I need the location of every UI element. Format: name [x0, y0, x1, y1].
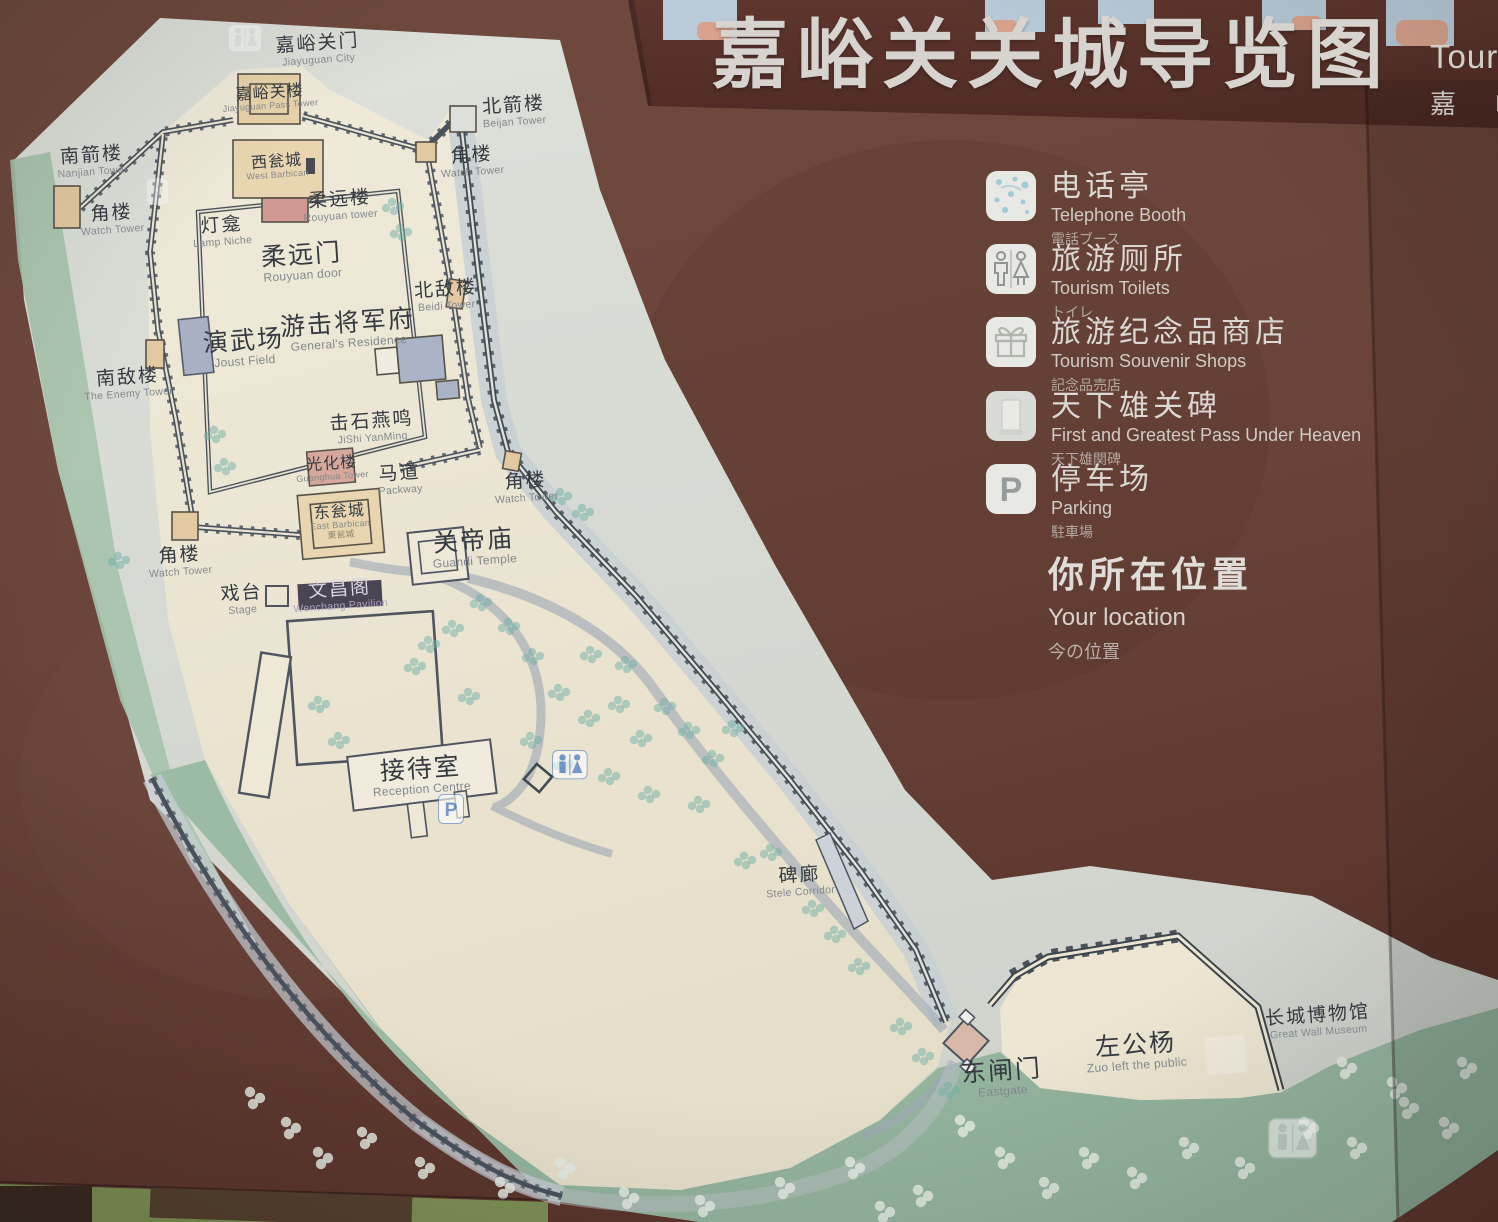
map-board-graphic: P P [0, 0, 1498, 1222]
title-chinese-partial: 嘉 峪 [1430, 84, 1498, 121]
your-location-ja: 今の位置 [1048, 638, 1253, 664]
sign-title: 嘉峪关关城导览图 [712, 2, 1392, 108]
sign-board: P P [0, 0, 1498, 1222]
your-location-block: 你所在位置 Your location 今の位置 [1048, 546, 1253, 664]
photo-vignette [0, 0, 1498, 1222]
title-side: Touri 嘉 峪 [1430, 38, 1498, 121]
title-english-partial: Touri [1430, 38, 1498, 76]
your-location-zh: 你所在位置 [1048, 546, 1253, 598]
your-location-en: Your location [1048, 604, 1253, 632]
